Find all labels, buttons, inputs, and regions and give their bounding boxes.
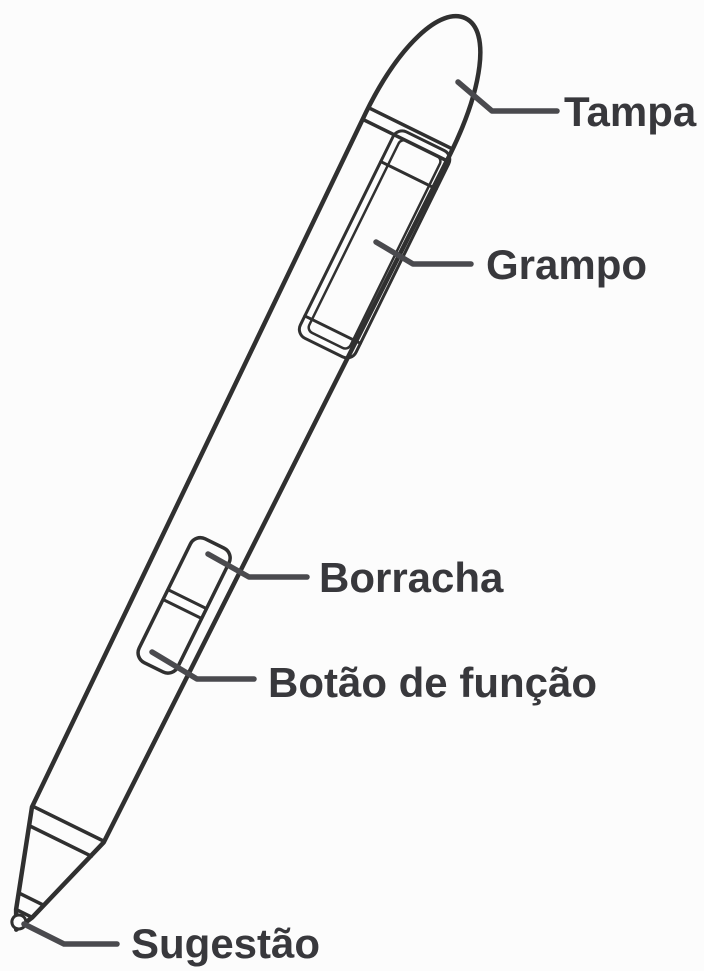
label-borracha: Borracha	[319, 555, 503, 601]
label-sugestao: Sugestão	[131, 921, 320, 967]
pen-illustration	[0, 0, 704, 971]
label-tampa: Tampa	[564, 89, 696, 135]
leader-line-sugestao	[24, 924, 117, 944]
label-botao: Botão de função	[268, 660, 597, 706]
diagram-canvas: Tampa Grampo Borracha Botão de função Su…	[0, 0, 704, 971]
label-grampo: Grampo	[486, 242, 647, 288]
